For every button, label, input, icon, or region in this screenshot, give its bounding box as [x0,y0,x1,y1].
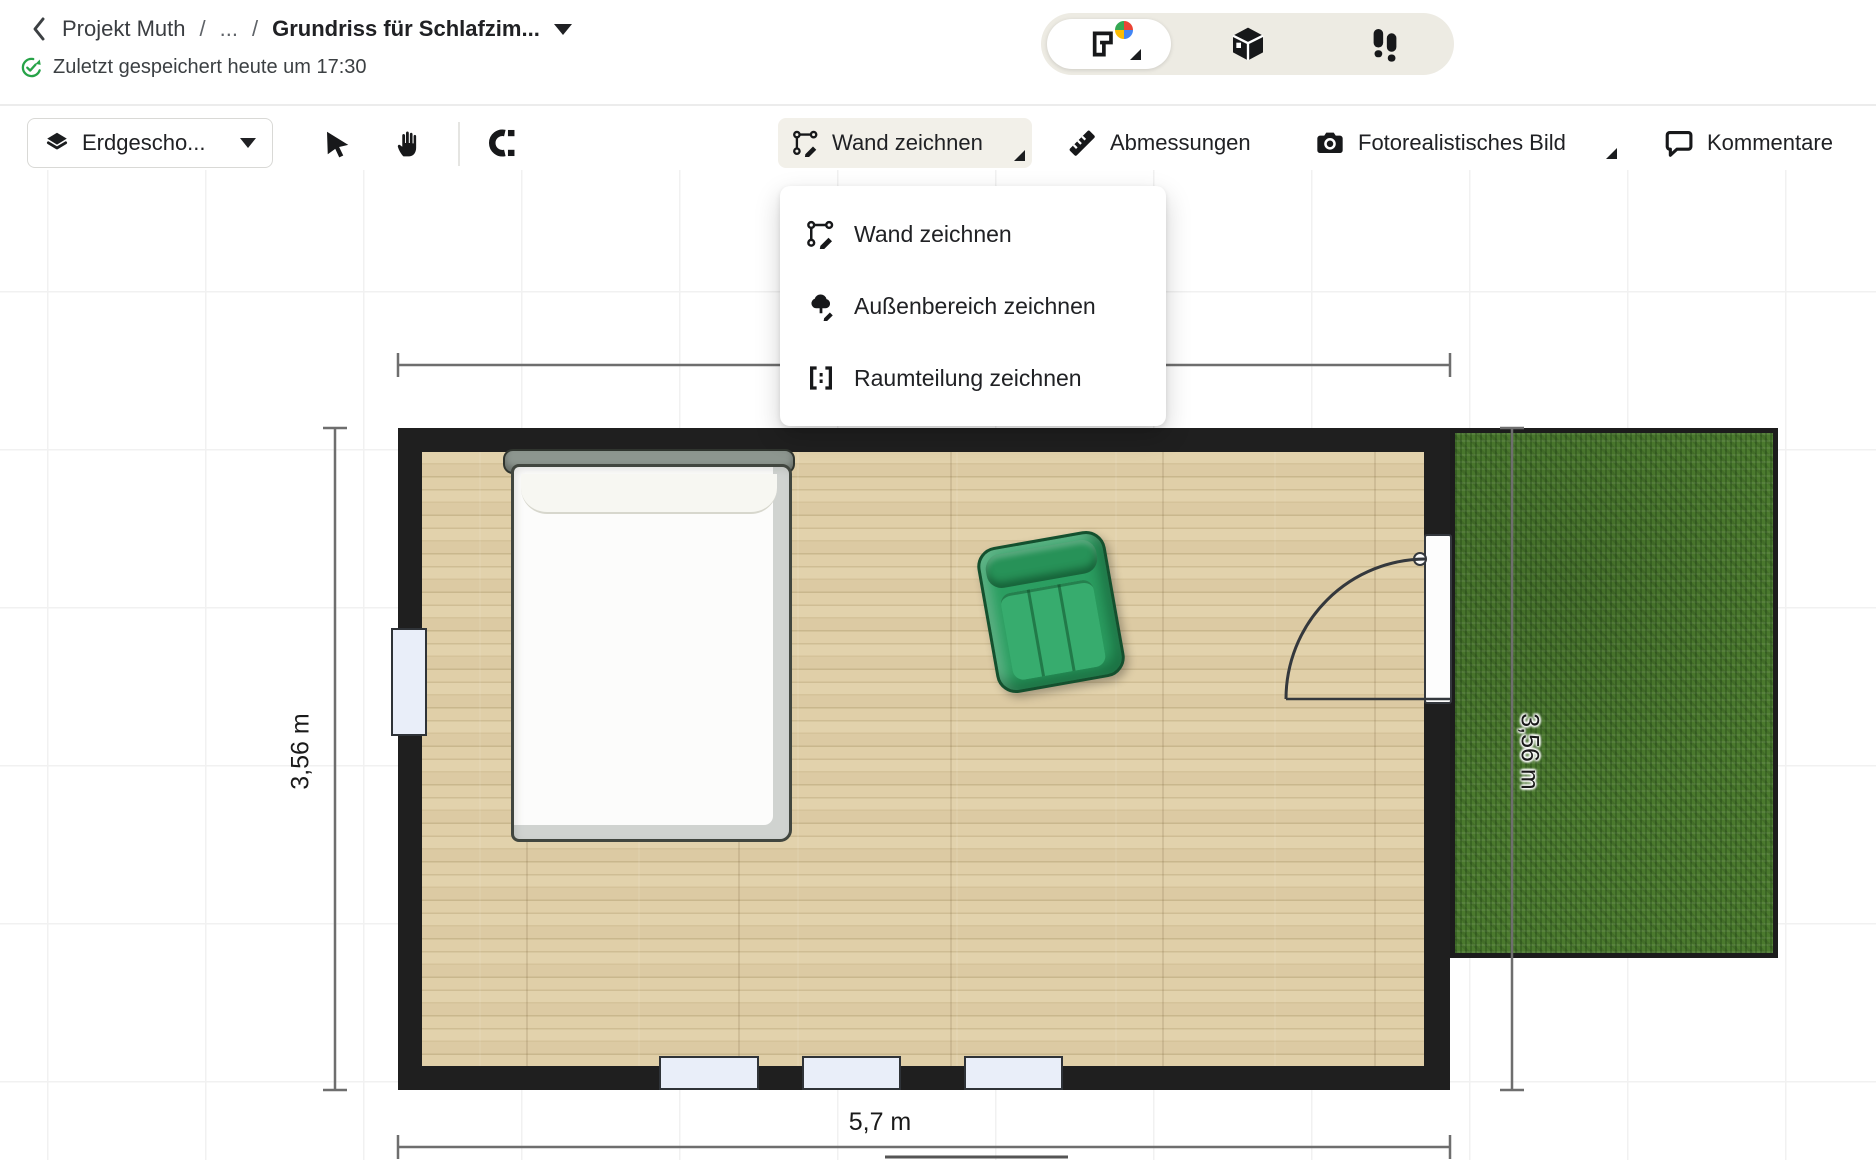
bed-pillow [521,474,777,514]
menu-item-label: Außenbereich zeichnen [854,293,1096,320]
toolbar-divider [458,122,460,166]
menu-item-room-division-draw[interactable]: Raumteilung zeichnen [780,342,1166,414]
outdoor-area-draw-icon [806,291,836,321]
bed[interactable] [511,464,792,842]
menu-item-outdoor-area-draw[interactable]: Außenbereich zeichnen [780,270,1166,342]
photorealistic-image-label: Fotorealistisches Bild [1358,130,1566,156]
comments-button[interactable]: Kommentare [1661,118,1833,168]
magnet-icon [485,126,519,160]
floor-select-button[interactable]: Erdgescho... [27,118,273,168]
measurements-button[interactable]: Abmessungen [1066,118,1251,168]
window-bottom-2[interactable] [802,1056,901,1090]
select-tool-button[interactable] [315,120,359,166]
wall-draw-button[interactable]: Wand zeichnen [778,118,1032,168]
floor-select-caret-icon [240,138,256,148]
ruler-icon [1066,127,1098,159]
dimension-label-left: 3,56 m [287,697,316,807]
photorealistic-caret-icon [1606,148,1617,159]
menu-item-label: Raumteilung zeichnen [854,365,1082,392]
menu-item-wall-draw[interactable]: Wand zeichnen [780,198,1166,270]
window-bottom-3[interactable] [964,1056,1063,1090]
grass-area[interactable] [1450,428,1778,958]
view-3d-icon[interactable] [1227,23,1269,65]
snap-tool-button[interactable] [478,120,526,166]
wall-draw-menu: Wand zeichnen Außenbereich zeichnen Raum… [780,186,1166,426]
pan-tool-button[interactable] [386,120,430,166]
breadcrumb-ellipsis[interactable]: ... [220,16,238,42]
room-division-draw-icon [806,363,836,393]
armchair-seat [999,578,1107,681]
cursor-pointer-icon [322,128,352,158]
save-status-text: Zuletzt gespeichert heute um 17:30 [53,56,367,79]
wall-draw-label: Wand zeichnen [832,130,983,156]
comments-label: Kommentare [1707,130,1833,156]
floor-select-label: Erdgescho... [82,130,206,156]
dimension-label-right: 3,56 m [1515,697,1544,807]
breadcrumb-separator: / [252,16,258,42]
walkthrough-icon[interactable] [1364,24,1406,66]
comment-bubble-icon [1661,126,1695,160]
photorealistic-image-button[interactable]: Fotorealistisches Bild [1314,118,1566,168]
door-knob [1413,552,1427,566]
header-separator [0,104,1876,106]
door[interactable] [1424,534,1452,704]
wall-draw-caret-icon [1014,150,1025,161]
window-left[interactable] [391,628,427,736]
armchair[interactable] [974,528,1128,696]
dimension-label-bottom: 5,7 m [815,1108,945,1137]
save-status: Zuletzt gespeichert heute um 17:30 [20,56,367,79]
floorplan-app: 3,56 m 3,56 m 5,7 m Projekt Muth / ... /… [0,0,1876,1160]
wall-draw-icon [792,129,820,157]
sync-check-icon [20,56,43,79]
breadcrumb-separator: / [200,16,206,42]
menu-item-label: Wand zeichnen [854,221,1012,248]
window-bottom-1[interactable] [659,1056,759,1090]
page-title[interactable]: Grundriss für Schlafzim... [272,16,540,42]
breadcrumb-project[interactable]: Projekt Muth [62,16,186,42]
title-caret-down-icon[interactable] [554,24,572,35]
camera-icon [1314,127,1346,159]
2d-options-caret-icon[interactable] [1130,49,1141,60]
wall-draw-icon [806,219,836,249]
hand-icon [392,127,424,159]
color-palette-badge [1113,19,1135,41]
measurements-label: Abmessungen [1110,130,1251,156]
breadcrumb: Projekt Muth / ... / Grundriss für Schla… [30,12,572,46]
layers-icon [44,130,70,156]
back-chevron-icon[interactable] [30,16,48,42]
